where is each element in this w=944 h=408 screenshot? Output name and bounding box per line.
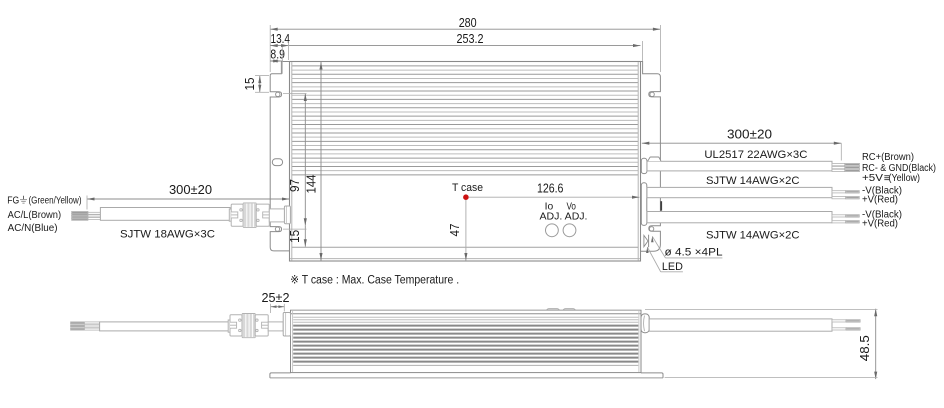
svg-text:LED: LED — [662, 261, 683, 273]
svg-text:ADJ. ADJ.: ADJ. ADJ. — [540, 211, 588, 223]
svg-text:25±2: 25±2 — [262, 290, 290, 305]
svg-text:UL2517 22AWG×3C: UL2517 22AWG×3C — [704, 149, 807, 161]
svg-text:(Green/Yellow): (Green/Yellow) — [29, 196, 82, 207]
svg-text:+5V: +5V — [862, 173, 884, 184]
svg-text:SJTW 18AWG×3C: SJTW 18AWG×3C — [120, 229, 215, 241]
svg-text:126.6: 126.6 — [537, 180, 564, 195]
svg-text:144: 144 — [304, 175, 319, 194]
svg-text:AC/L(Brown): AC/L(Brown) — [8, 210, 62, 221]
svg-text:※ T case : Max. Case Temperatu: ※ T case : Max. Case Temperature . — [290, 275, 459, 287]
svg-text:+V(Red): +V(Red) — [862, 218, 898, 229]
svg-text:8.9: 8.9 — [270, 46, 285, 61]
svg-text:15: 15 — [242, 78, 257, 91]
svg-text:(Yellow): (Yellow) — [889, 173, 921, 184]
svg-text:300±20: 300±20 — [727, 126, 772, 141]
svg-text:97: 97 — [287, 179, 302, 192]
svg-text:SJTW 14AWG×2C: SJTW 14AWG×2C — [706, 175, 800, 187]
svg-text:ø 4.5 ×4PL: ø 4.5 ×4PL — [665, 247, 723, 259]
svg-text:SJTW 14AWG×2C: SJTW 14AWG×2C — [706, 230, 800, 242]
svg-text:253.2: 253.2 — [457, 31, 484, 46]
svg-text:300±20: 300±20 — [169, 182, 212, 197]
svg-text:AC/N(Blue): AC/N(Blue) — [8, 223, 58, 234]
svg-text:FG: FG — [7, 196, 19, 207]
svg-text:48.5: 48.5 — [857, 335, 872, 361]
svg-text:T case: T case — [452, 182, 483, 194]
svg-text:13.4: 13.4 — [271, 31, 291, 46]
svg-text:+V(Red): +V(Red) — [862, 195, 898, 206]
svg-text:280: 280 — [459, 15, 477, 30]
svg-text:RC+(Brown): RC+(Brown) — [862, 152, 914, 163]
svg-text:15: 15 — [287, 230, 302, 243]
svg-text:47: 47 — [447, 224, 462, 237]
